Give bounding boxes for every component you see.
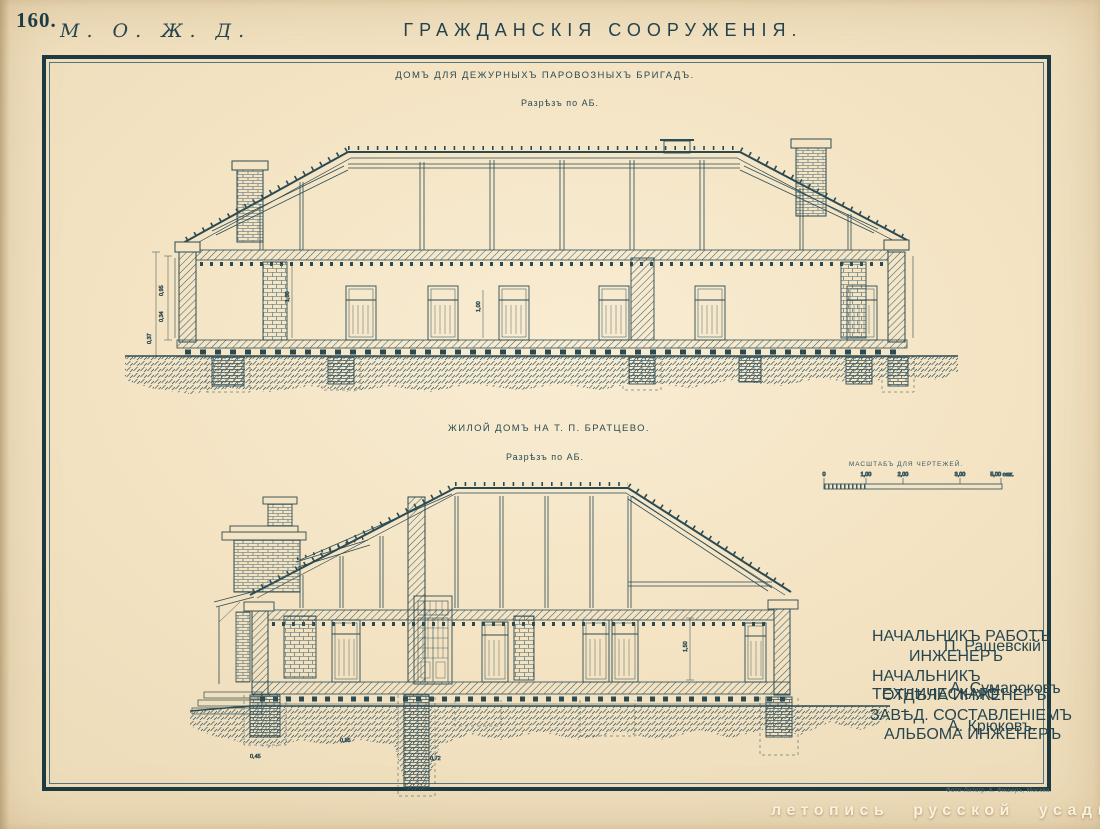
svg-text:1,30: 1,30 bbox=[285, 291, 291, 302]
drawing2-doors bbox=[332, 596, 766, 684]
scanned-album-page: { "page": { "number": "160.", "railway_m… bbox=[0, 0, 1100, 829]
svg-text:2,00: 2,00 bbox=[898, 472, 909, 478]
drawing1-ceiling bbox=[196, 250, 888, 264]
svg-text:5,00 саж.: 5,00 саж. bbox=[990, 472, 1014, 478]
drawing2-central-chimney bbox=[408, 497, 425, 682]
svg-text:0: 0 bbox=[822, 472, 825, 478]
section-drawing-2: 0,45 0,85 0,72 1,50 bbox=[190, 484, 890, 796]
signature-1-name: П. Рашевскій bbox=[944, 638, 1041, 656]
drawing2-roof bbox=[250, 484, 791, 598]
svg-text:0,37: 0,37 bbox=[147, 333, 153, 344]
svg-text:1,50: 1,50 bbox=[683, 641, 689, 652]
svg-text:0,34: 0,34 bbox=[159, 311, 165, 322]
svg-text:0,95: 0,95 bbox=[159, 285, 165, 296]
signature-3-name: А. Крюковъ. bbox=[948, 718, 1036, 736]
drawing2-floor bbox=[252, 682, 790, 704]
svg-text:0,85: 0,85 bbox=[340, 738, 351, 744]
svg-text:0,72: 0,72 bbox=[430, 756, 441, 762]
svg-text:3,00: 3,00 bbox=[955, 472, 966, 478]
signature-2-name: А. Сумароковъ bbox=[950, 680, 1061, 698]
svg-text:0,45: 0,45 bbox=[250, 754, 261, 760]
printer-imprint: Фото-Литогр. К. Фишеръ, Москва. bbox=[946, 788, 1052, 794]
collection-watermark: летопись русской усадьбы bbox=[771, 802, 1100, 820]
section-drawing-1: 0,95 0,34 0,37 1,30 1,00 bbox=[125, 139, 958, 394]
drawing1-stoves bbox=[263, 258, 866, 340]
drawing2-attic-framing bbox=[300, 494, 772, 608]
drawing1-attic-framing bbox=[212, 160, 878, 250]
svg-text:1,00: 1,00 bbox=[476, 301, 482, 312]
svg-text:1,00: 1,00 bbox=[861, 472, 872, 478]
drawing1-floor bbox=[177, 340, 907, 357]
scale-bar: 0 1,00 2,00 3,00 5,00 саж. bbox=[822, 472, 1014, 489]
drawing1-doors bbox=[346, 286, 877, 340]
